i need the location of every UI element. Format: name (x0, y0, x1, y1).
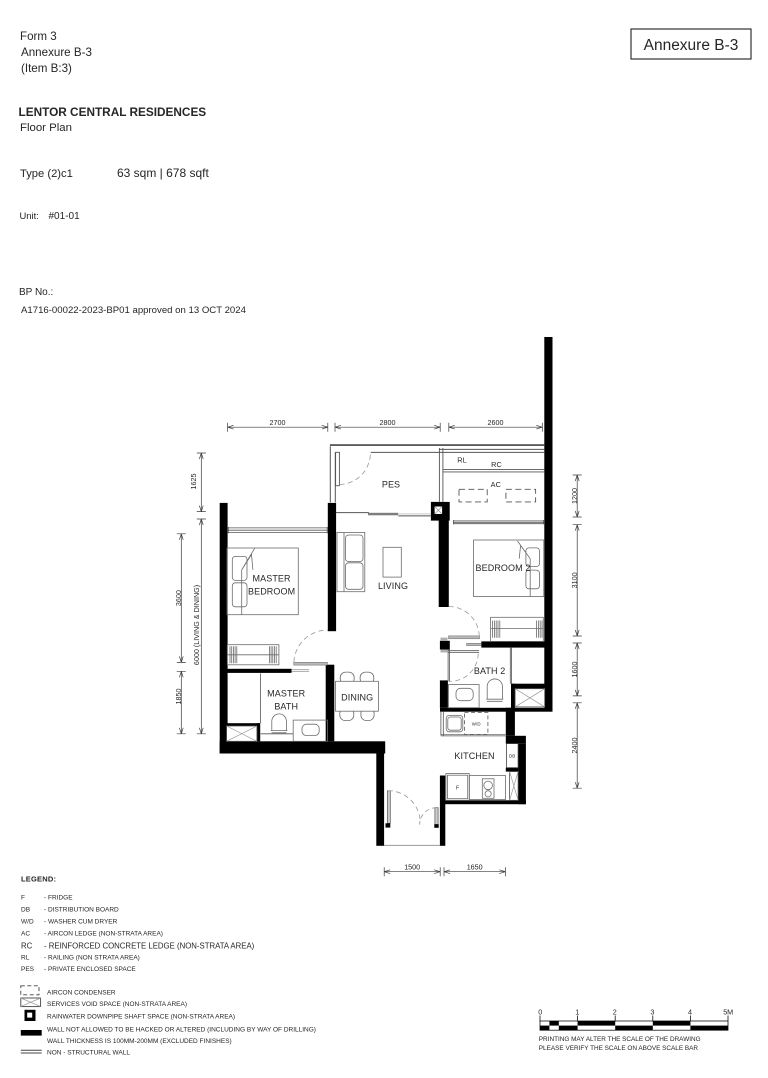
svg-text:AIRCON CONDENSER: AIRCON CONDENSER (47, 989, 116, 996)
svg-text:AC: AC (491, 480, 501, 489)
svg-text:F: F (21, 895, 25, 902)
svg-text:WALL NOT ALLOWED TO BE HACKED: WALL NOT ALLOWED TO BE HACKED OR ALTERED… (47, 1027, 316, 1034)
svg-text:- WASHER CUM DRYER: - WASHER CUM DRYER (44, 919, 118, 926)
svg-text:Type (2)c1: Type (2)c1 (20, 168, 73, 180)
svg-text:LIVING: LIVING (378, 581, 408, 591)
svg-text:6000 (LIVING & DINING): 6000 (LIVING & DINING) (192, 585, 201, 665)
svg-text:PLEASE VERIFY THE SCALE ON ABO: PLEASE VERIFY THE SCALE ON ABOVE SCALE B… (539, 1045, 699, 1052)
svg-text:- FRIDGE: - FRIDGE (44, 895, 73, 902)
svg-text:BEDROOM 2: BEDROOM 2 (476, 563, 531, 573)
svg-text:DINING: DINING (341, 693, 373, 703)
svg-text:AC: AC (21, 931, 30, 938)
svg-text:2400: 2400 (570, 738, 579, 754)
svg-text:3600: 3600 (174, 590, 183, 606)
svg-text:Floor Plan: Floor Plan (20, 122, 72, 134)
svg-text:1500: 1500 (404, 863, 420, 872)
svg-text:Unit:: Unit: (20, 210, 39, 221)
svg-text:- PRIVATE ENCLOSED SPACE: - PRIVATE ENCLOSED SPACE (44, 966, 136, 973)
svg-text:MASTER: MASTER (267, 689, 306, 699)
svg-text:- DISTRIBUTION BOARD: - DISTRIBUTION BOARD (44, 907, 119, 914)
svg-text:63 sqm | 678 sqft: 63 sqm | 678 sqft (117, 166, 210, 180)
svg-text:1200: 1200 (570, 488, 579, 504)
svg-text:LEGEND:: LEGEND: (21, 875, 56, 884)
svg-text:PRINTING MAY ALTER THE SCALE O: PRINTING MAY ALTER THE SCALE OF THE DRAW… (539, 1036, 701, 1043)
svg-text:RAINWATER DOWNPIPE SHAFT SPACE: RAINWATER DOWNPIPE SHAFT SPACE (NON-STRA… (47, 1013, 235, 1020)
svg-text:2600: 2600 (488, 418, 504, 427)
svg-text:1: 1 (575, 1007, 579, 1016)
svg-text:- AIRCON LEDGE (NON-STRATA ARE: - AIRCON LEDGE (NON-STRATA AREA) (44, 931, 163, 938)
svg-text:MASTER: MASTER (253, 574, 292, 584)
svg-text:RL: RL (457, 455, 467, 464)
svg-text:3100: 3100 (570, 572, 579, 588)
svg-text:WALL THICKNESS IS 100MM-200MM: WALL THICKNESS IS 100MM-200MM (EXCLUDED … (47, 1038, 232, 1045)
svg-text:A1716-00022-2023-BP01 approved: A1716-00022-2023-BP01 approved on 13 OCT… (21, 305, 247, 316)
svg-text:5M: 5M (723, 1007, 733, 1016)
svg-text:W/D: W/D (472, 721, 481, 726)
svg-text:1650: 1650 (467, 863, 483, 872)
svg-text:0: 0 (538, 1007, 542, 1016)
svg-text:BATH 2: BATH 2 (474, 666, 505, 676)
svg-text:1600: 1600 (570, 662, 579, 678)
svg-text:BATH: BATH (274, 702, 298, 712)
svg-text:2800: 2800 (380, 418, 396, 427)
svg-text:(Item B:3): (Item B:3) (21, 62, 72, 75)
svg-text:RC: RC (21, 941, 33, 950)
svg-text:KITCHEN: KITCHEN (454, 751, 494, 761)
svg-text:DB: DB (21, 907, 30, 914)
svg-text:W/D: W/D (21, 919, 34, 926)
svg-text:PES: PES (21, 966, 35, 973)
svg-text:DB: DB (509, 754, 515, 759)
svg-text:BEDROOM: BEDROOM (248, 587, 295, 597)
svg-text:SERVICES VOID SPACE (NON-STRAT: SERVICES VOID SPACE (NON-STRATA AREA) (47, 1001, 187, 1008)
svg-text:Annexure B-3: Annexure B-3 (21, 46, 92, 59)
svg-text:RL: RL (21, 955, 30, 962)
svg-text:#01-01: #01-01 (49, 211, 81, 222)
svg-text:BP No.:: BP No.: (19, 287, 53, 298)
svg-text:2: 2 (613, 1007, 617, 1016)
svg-text:NON - STRUCTURAL WALL: NON - STRUCTURAL WALL (47, 1050, 130, 1057)
svg-text:1850: 1850 (174, 689, 183, 705)
svg-text:PES: PES (382, 480, 400, 490)
svg-text:3: 3 (650, 1007, 654, 1016)
svg-text:Form 3: Form 3 (20, 30, 57, 43)
svg-text:RC: RC (491, 460, 502, 469)
svg-text:- REINFORCED CONCRETE LEDGE (N: - REINFORCED CONCRETE LEDGE (NON-STRATA … (44, 941, 255, 950)
svg-text:F: F (456, 786, 459, 792)
svg-text:2700: 2700 (270, 418, 286, 427)
svg-text:LENTOR CENTRAL RESIDENCES: LENTOR CENTRAL RESIDENCES (19, 105, 207, 119)
svg-text:- RAILING (NON STRATA AREA): - RAILING (NON STRATA AREA) (44, 955, 140, 962)
svg-text:4: 4 (688, 1007, 692, 1016)
svg-text:Annexure B-3: Annexure B-3 (644, 37, 739, 54)
svg-text:1625: 1625 (189, 474, 198, 490)
